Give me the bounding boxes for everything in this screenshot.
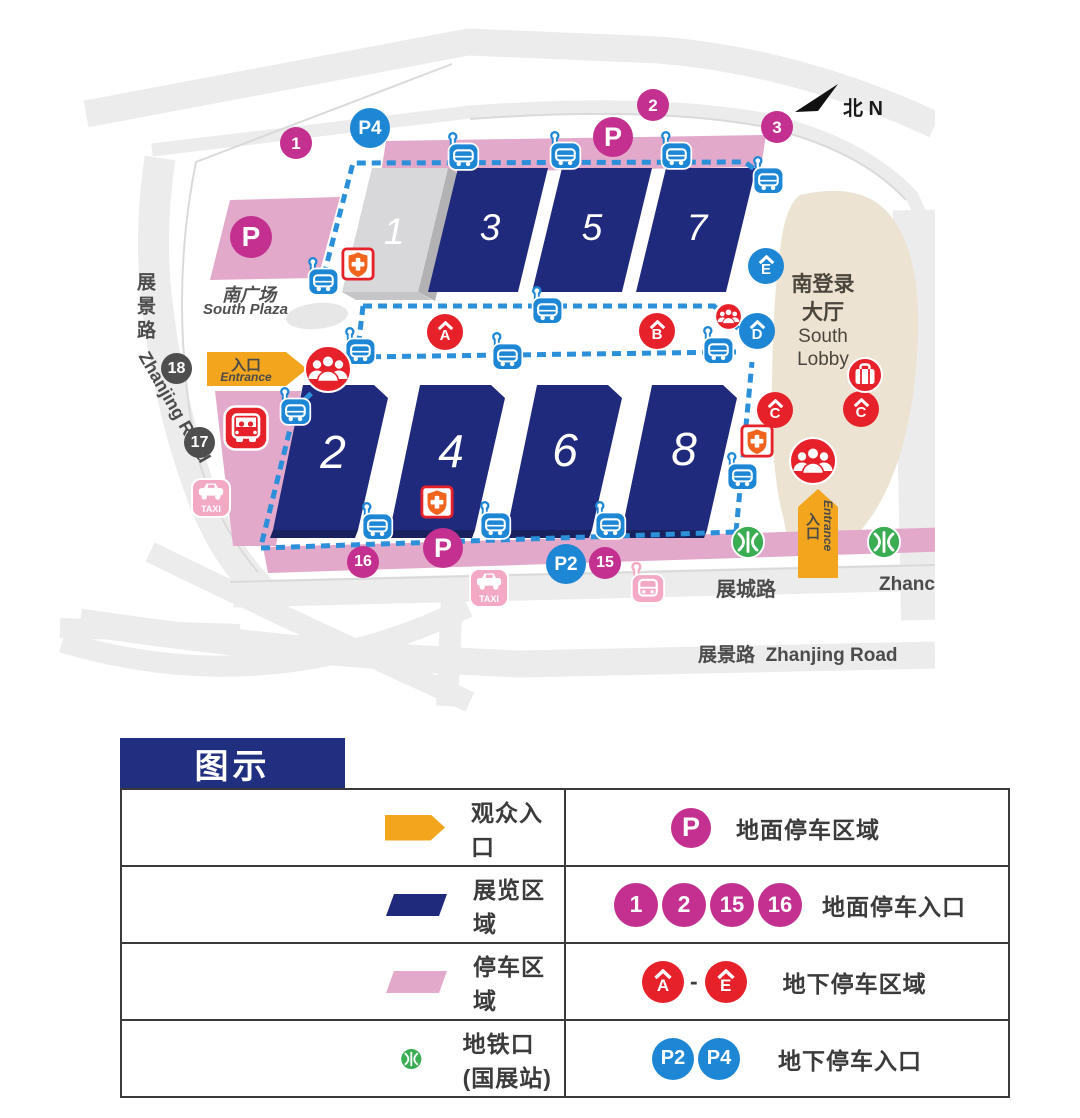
road-mid-label-cn: 展城路	[716, 573, 776, 602]
metro-icon	[400, 1041, 423, 1077]
underground-area-e: E	[748, 248, 784, 284]
shuttle-stop-icon	[701, 326, 735, 366]
first-aid-icon	[341, 247, 375, 281]
gate-badge: 1	[614, 883, 658, 927]
legend-row-parking-area: 停车区域	[122, 948, 564, 1016]
area-letter: D	[752, 327, 763, 342]
south-plaza-label-en: South Plaza	[203, 301, 288, 318]
legend: 图示 观众入口 P 地面停车区域 展览区域	[120, 738, 1010, 1098]
range-dash: -	[690, 968, 699, 995]
venue-map: 北 N 展景路 Zhanjing Road 展城路 Zhanc 展景路 Zhan…	[0, 0, 935, 712]
legend-label: 地面停车区域	[736, 811, 880, 845]
north-label: 北 N	[843, 92, 883, 121]
legend-row-surface-parking-gates: 1 2 15 16 地面停车入口	[566, 883, 1008, 927]
entrance-arrow-swatch	[385, 815, 445, 841]
hall-2-number: 2	[320, 425, 346, 479]
road-mid-label-en: Zhanc	[879, 574, 935, 596]
entrance-south-label-en: Entrance	[821, 500, 835, 551]
p-entrance-badge: P2	[652, 1038, 694, 1080]
shuttle-stop-icon	[593, 501, 627, 541]
surface-gate-15: 15	[589, 547, 621, 579]
area-letter: E	[720, 977, 731, 994]
surface-gate-3: 3	[761, 111, 793, 143]
metro-icon	[867, 525, 901, 559]
underground-area-c-east: C	[843, 391, 879, 427]
taxi-car-glyph	[471, 571, 507, 593]
road-marker-17: 17	[184, 427, 215, 458]
visitor-group-icon-small	[715, 303, 742, 330]
area-letter: B	[652, 327, 663, 342]
taxi-stand-icon: TAXI	[469, 568, 509, 608]
gate-badge: 15	[710, 883, 754, 927]
underground-entrance-p2: P2	[546, 544, 586, 584]
area-letter: A	[657, 977, 669, 994]
legend-label: 地面停车入口	[822, 888, 966, 922]
shuttle-stop-icon	[659, 131, 693, 171]
south-lobby-label-cn2: 大厅	[802, 296, 844, 326]
area-letter: E	[761, 262, 771, 277]
road-bottom-label: 展景路 Zhanjing Road	[698, 640, 898, 667]
hall-5-number: 5	[582, 207, 603, 249]
first-aid-icon	[420, 485, 454, 519]
legend-label: 展览区域	[473, 871, 564, 939]
legend-row-underground-parking-area: A - E 地下停车区域	[566, 961, 1008, 1003]
surface-parking-p-north: P	[593, 117, 633, 157]
legend-row-exhibition-area: 展览区域	[122, 871, 564, 939]
road-left-label-cn: 展景路	[131, 272, 158, 344]
shuttle-stop-icon	[725, 452, 759, 492]
shuttle-bus-pickup-icon	[223, 405, 269, 451]
shuttle-stop-icon	[360, 502, 394, 542]
shuttle-stop-icon	[278, 387, 312, 427]
shuttle-stop-icon	[490, 332, 524, 372]
underground-area-badge-a: A	[642, 961, 684, 1003]
taxi-text: TAXI	[193, 504, 229, 514]
surface-gate-16: 16	[347, 546, 379, 578]
legend-row-underground-parking-entrance: P2 P4 地下停车入口	[566, 1038, 1008, 1080]
south-lobby-label-cn1: 南登录	[792, 268, 855, 298]
road-marker-18: 18	[161, 353, 192, 384]
visitor-group-icon	[304, 345, 352, 393]
hall-8-number: 8	[671, 422, 697, 476]
legend-row-visitor-entrance: 观众入口	[122, 794, 564, 862]
road-bottom-label-en: Zhanjing Road	[766, 645, 898, 666]
surface-parking-p-plaza: P	[230, 216, 272, 258]
city-bus-stop-icon	[629, 562, 666, 605]
legend-header: 图示	[120, 738, 345, 788]
legend-row-surface-parking-area: P 地面停车区域	[566, 808, 1008, 848]
hall-1-number: 1	[384, 211, 405, 253]
gate-badge: 16	[758, 883, 802, 927]
taxi-car-glyph	[193, 481, 229, 503]
surface-parking-p-south: P	[423, 528, 463, 568]
legend-label: 地下停车区域	[783, 965, 927, 999]
underground-area-b: B	[639, 313, 675, 349]
south-lobby-shape	[772, 191, 918, 561]
legend-label: 地铁口(国展站)	[463, 1025, 564, 1093]
underground-area-a: A	[427, 314, 463, 350]
shuttle-stop-icon	[306, 257, 340, 297]
road-bottom-label-cn: 展景路	[698, 645, 755, 666]
underground-area-d: D	[739, 313, 775, 349]
gate-badge: 2	[662, 883, 706, 927]
hall-7-number: 7	[687, 207, 708, 249]
shuttle-stop-icon	[548, 131, 582, 171]
surface-parking-badge: P	[671, 808, 711, 848]
luggage-icon	[847, 357, 883, 393]
legend-table: 观众入口 P 地面停车区域 展览区域 1	[120, 788, 1010, 1098]
entrance-west-label-en: Entrance	[220, 370, 271, 384]
hall-3-number: 3	[480, 207, 501, 249]
metro-icon	[731, 525, 765, 559]
p-entrance-badge: P4	[698, 1038, 740, 1080]
underground-area-badge-e: E	[705, 961, 747, 1003]
shuttle-stop-icon	[446, 132, 480, 172]
underground-area-c-west: C	[757, 392, 793, 428]
legend-label: 观众入口	[471, 794, 564, 862]
south-lobby-label-en1: South	[798, 326, 848, 348]
hall-4-number: 4	[438, 424, 464, 478]
hall-6-number: 6	[552, 423, 578, 477]
underground-entrance-p4: P4	[350, 108, 390, 148]
first-aid-icon	[740, 424, 774, 458]
taxi-text: TAXI	[471, 594, 507, 604]
shuttle-stop-icon	[478, 501, 512, 541]
visitor-group-icon	[789, 437, 837, 485]
south-lobby-label-en2: Lobby	[797, 349, 849, 371]
legend-row-metro: 地铁口(国展站)	[122, 1025, 564, 1093]
surface-gate-2: 2	[637, 89, 669, 121]
shuttle-stop-icon	[530, 286, 564, 326]
entrance-south-label-cn: 入口	[803, 512, 823, 540]
parking-area-swatch	[386, 971, 447, 993]
legend-label: 地下停车入口	[778, 1042, 922, 1076]
legend-label: 停车区域	[473, 948, 564, 1016]
area-letter: C	[770, 406, 781, 421]
surface-gate-1: 1	[280, 127, 312, 159]
exhibition-area-swatch	[386, 894, 447, 916]
area-letter: C	[856, 405, 867, 420]
area-letter: A	[440, 328, 451, 343]
shuttle-stop-icon	[751, 156, 785, 196]
taxi-stand-icon: TAXI	[191, 478, 231, 518]
